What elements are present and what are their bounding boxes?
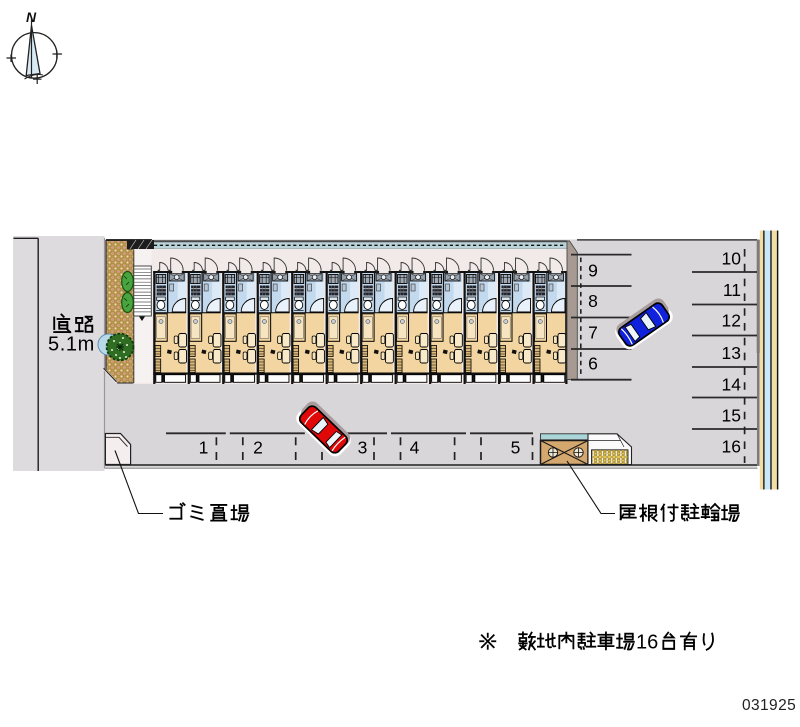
svg-text:2: 2 <box>253 438 263 458</box>
svg-text:13: 13 <box>722 343 741 363</box>
svg-text:14: 14 <box>722 375 742 395</box>
svg-text:8: 8 <box>588 291 598 311</box>
svg-text:1: 1 <box>199 438 209 458</box>
svg-text:3: 3 <box>358 438 368 458</box>
svg-text:7: 7 <box>588 323 598 343</box>
svg-text:11: 11 <box>723 280 741 300</box>
svg-text:9: 9 <box>588 261 598 281</box>
svg-text:12: 12 <box>722 311 741 331</box>
svg-text:6: 6 <box>588 354 598 374</box>
svg-text:16: 16 <box>722 437 741 457</box>
svg-text:N: N <box>26 9 37 25</box>
svg-text:5: 5 <box>511 438 521 458</box>
svg-text:4: 4 <box>410 438 420 458</box>
svg-text:10: 10 <box>722 249 742 269</box>
svg-text:16: 16 <box>636 632 658 654</box>
svg-text:031925: 031925 <box>742 697 796 714</box>
svg-text:5.1m: 5.1m <box>48 334 95 356</box>
svg-text:15: 15 <box>722 406 741 426</box>
